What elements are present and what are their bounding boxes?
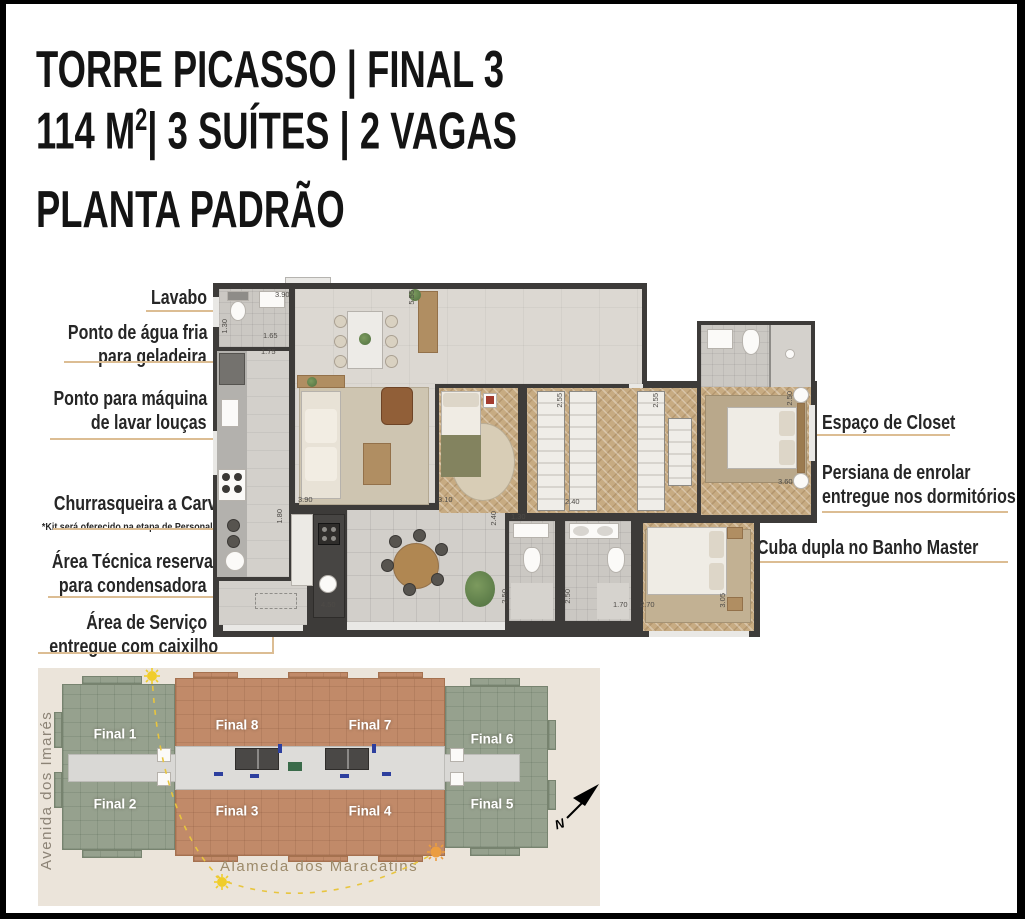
page-title-line3: PLANTA PADRÃO [36, 184, 477, 236]
terrace-chair [389, 535, 402, 548]
dim-label: 2.55 [555, 393, 564, 408]
pillow [709, 531, 724, 558]
grill-burner [331, 536, 336, 541]
north-arrow-icon: N [553, 780, 608, 835]
dining-chair [334, 315, 347, 328]
dim-label: 1.80 [275, 509, 284, 524]
terrace-cabinet [291, 514, 313, 586]
sofa [301, 391, 341, 499]
callout-area-tecnica: Área Técnica reservada para condensadora [7, 551, 207, 599]
svg-text:N: N [553, 815, 567, 832]
wardrobe [637, 391, 665, 511]
toilet-suite [742, 329, 760, 355]
leader-lava-loucas [50, 438, 236, 440]
dining-chair [334, 355, 347, 368]
pouf [793, 473, 809, 489]
dim-label: 3.10 [438, 495, 453, 504]
dim-label: 1.30 [220, 319, 229, 334]
dim-label: 3.90 [275, 290, 290, 299]
burner [234, 473, 242, 481]
wardrobe [537, 391, 565, 511]
frame-right [1017, 0, 1025, 919]
frame-top [0, 0, 1025, 4]
shower-head [785, 349, 795, 359]
dim-label: 5.55 [407, 290, 416, 305]
vanity-bath1 [513, 523, 549, 538]
pouf [793, 387, 809, 403]
callout-persiana: Persiana de enrolar entregue nos dormitó… [822, 462, 1022, 510]
dim-label: 2.70 [640, 600, 655, 609]
leader-agua-fria [64, 361, 236, 363]
dishwasher-sink [221, 399, 239, 427]
window-bedroom2 [649, 631, 749, 637]
terrace-chair [413, 529, 426, 542]
frame-bottom [0, 913, 1025, 919]
terrace-sink [319, 575, 337, 593]
dim-label: 3.05 [718, 593, 727, 608]
dim-label: 1.75 [261, 347, 276, 356]
callout-closet: Espaço de Closet [822, 412, 1022, 436]
nightstand [727, 527, 743, 539]
pillow [779, 411, 795, 436]
pillow [709, 563, 724, 590]
dining-chair [334, 335, 347, 348]
toilet-master-bath [607, 547, 625, 573]
toilet-lavabo [230, 301, 246, 321]
door-entry [629, 384, 643, 388]
nightstand [727, 597, 743, 611]
flyer-page: TORRE PICASSO | FINAL 3 114 M2| 3 SUÍTES… [0, 0, 1025, 919]
terrace-plant [465, 571, 495, 607]
dim-label: 3.90 [298, 495, 313, 504]
shower-glass [769, 325, 771, 387]
callout-lavabo: Lavabo [7, 287, 207, 311]
dim-label: 1.30 [511, 512, 526, 521]
dim-label: 4.50 [321, 600, 336, 609]
sofa-console [297, 375, 345, 388]
site-plan: Final 1 Final 2 Final 8 Final 3 Final 7 … [38, 668, 600, 906]
bed-throw [441, 435, 481, 477]
terrace-chair [403, 583, 416, 596]
dining-chair [385, 355, 398, 368]
page-title-line1: TORRE PICASSO | FINAL 3 [36, 44, 705, 96]
dim-label: 2.50 [563, 589, 572, 604]
sofa-cushion [305, 409, 337, 443]
leader-persiana [822, 511, 1008, 513]
round-sink [225, 551, 245, 571]
stool [227, 535, 240, 548]
dim-label: 2.55 [651, 393, 660, 408]
burner [222, 473, 230, 481]
callout-lava-loucas: Ponto para máquina de lavar louças [7, 388, 207, 436]
dim-label: 1.65 [263, 331, 278, 340]
console-sideboard [418, 291, 438, 353]
frame-left [0, 0, 6, 919]
dim-label: 1.70 [613, 600, 628, 609]
pillow [443, 393, 479, 407]
headboard [797, 403, 805, 473]
fridge [219, 353, 245, 385]
shower-bath1 [511, 583, 553, 619]
washer-outline [255, 593, 297, 609]
window-terrace [347, 622, 505, 630]
armchair [381, 387, 413, 425]
coffee-table [363, 443, 391, 485]
burner [222, 485, 230, 493]
dim-label: 2.50 [785, 391, 794, 406]
grill-burner [322, 527, 327, 532]
grill-burner [322, 536, 327, 541]
burner [234, 485, 242, 493]
dim-label: 3.60 [778, 477, 793, 486]
grill-burner [331, 527, 336, 532]
window-lavabo [213, 297, 219, 327]
closet-wardrobe [668, 418, 692, 486]
window-service [223, 625, 303, 631]
centerpiece-plant [359, 333, 371, 345]
window-master [809, 405, 815, 461]
sun-icon [427, 843, 445, 861]
page-title-line2: 114 M2| 3 SUÍTES | 2 VAGAS [36, 104, 723, 157]
floor-plan: 3.90 1.30 1.65 1.75 5.55 2.55 2.55 2.50 … [213, 281, 815, 638]
plant [307, 377, 317, 387]
sun-icon [144, 668, 160, 684]
terrace-chair [431, 573, 444, 586]
pillow [779, 440, 795, 465]
decor-red [486, 396, 494, 404]
sofa-cushion [305, 447, 337, 481]
wardrobe [569, 391, 597, 511]
dim-label: 2.40 [489, 511, 498, 526]
dining-chair [385, 315, 398, 328]
leader-lavabo [146, 310, 213, 312]
basin [597, 526, 613, 536]
terrace-chair [435, 543, 448, 556]
sink-suite [707, 329, 733, 349]
terrace-chair [381, 559, 394, 572]
dim-label: 2.50 [500, 589, 509, 604]
dim-label: 2.40 [565, 497, 580, 506]
dining-chair [385, 335, 398, 348]
stool [227, 519, 240, 532]
basin [573, 526, 589, 536]
toilet-bath1 [523, 547, 541, 573]
leader-area-servico [38, 652, 274, 654]
sun-icon [214, 874, 230, 890]
sun-path [38, 668, 600, 906]
toilet-tank [227, 291, 249, 301]
grill [318, 523, 340, 545]
